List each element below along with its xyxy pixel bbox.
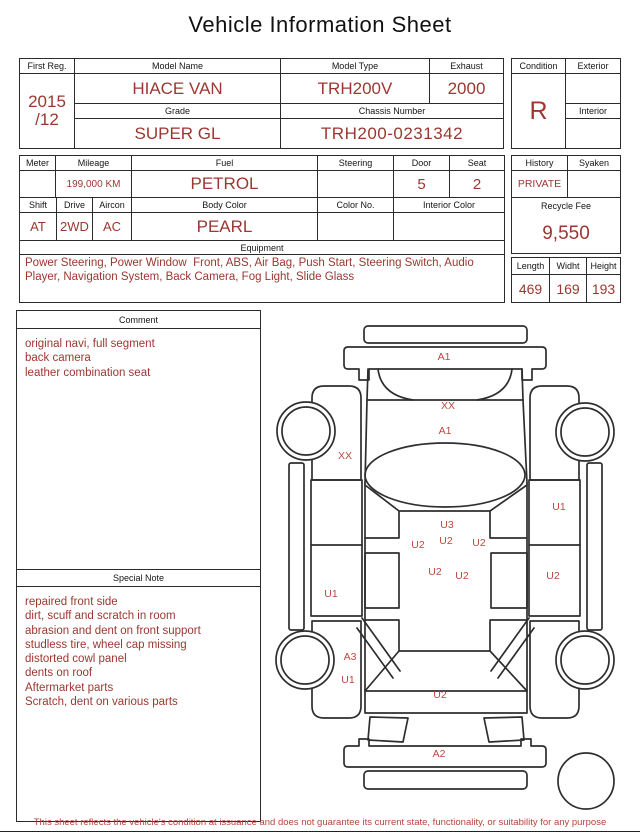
car-sill-right	[587, 463, 602, 630]
length-header: Length	[512, 258, 550, 275]
steering-value	[318, 171, 394, 198]
damage-label-u2: U2	[546, 570, 560, 582]
drive-header: Drive	[57, 198, 93, 213]
car-cowl-sides	[365, 400, 527, 483]
body-color-value: PEARL	[132, 213, 318, 241]
car-roof-side-panel-left	[365, 553, 399, 608]
aircon-value: AC	[93, 213, 132, 241]
syaken-header: Syaken	[568, 156, 620, 171]
model-name-header: Model Name	[75, 59, 281, 74]
recycle-fee-value: 9,550	[512, 214, 620, 253]
car-dpillar-left	[357, 618, 400, 678]
shift-value: AT	[20, 213, 57, 241]
dimensions-table: Length Widht Height 469 169 193	[511, 257, 621, 303]
width-header: Widht	[550, 258, 587, 275]
comment-text: original navi, full segment back camera …	[17, 331, 260, 401]
car-taillight-right	[484, 717, 524, 742]
condition-table: Condition R Exterior Interior	[511, 58, 621, 149]
page-title: Vehicle Information Sheet	[0, 12, 640, 38]
car-front-panel	[367, 369, 523, 400]
color-no-value	[318, 213, 394, 241]
first-reg-header: First Reg.	[20, 59, 75, 74]
damage-label-u1: U1	[341, 674, 355, 686]
height-header: Height	[587, 258, 620, 275]
damage-label-u2: U2	[455, 570, 469, 582]
aircon-header: Aircon	[93, 198, 132, 213]
color-no-header: Color No.	[318, 198, 394, 213]
damage-label-a2: A2	[433, 748, 446, 760]
damage-label-u2: U2	[439, 535, 453, 547]
equipment-header: Equipment	[20, 241, 504, 255]
car-windshield-arc-left	[378, 369, 413, 400]
length-value: 469	[512, 275, 550, 302]
chassis-number-value: TRH200-0231342	[281, 119, 503, 148]
drive-value: 2WD	[57, 213, 93, 241]
disclaimer-text: This sheet reflects the vehicle's condit…	[0, 817, 640, 828]
damage-label-a3: A3	[344, 651, 357, 663]
car-roof-rear-section	[365, 620, 527, 651]
damage-label-u3: U3	[440, 519, 454, 531]
special-note-text: repaired front side dirt, scuff and scra…	[17, 589, 260, 739]
wheel-rear-right	[556, 631, 614, 689]
damage-label-xx: XX	[441, 400, 455, 412]
model-type-value: TRH200V	[281, 74, 430, 104]
comment-header: Comment	[17, 311, 260, 329]
mileage-value: 199,000 KM	[56, 171, 132, 198]
exterior-header: Exterior	[566, 59, 620, 74]
car-taillight-left	[368, 717, 408, 742]
syaken-value	[568, 171, 620, 198]
exterior-value	[566, 74, 620, 104]
grade-header: Grade	[75, 104, 281, 119]
wheel-front-right	[556, 403, 614, 461]
interior-header: Interior	[566, 104, 620, 119]
car-roof-sides	[365, 483, 527, 691]
equipment-value: Power Steering, Power Window Front, ABS,…	[20, 255, 504, 302]
special-note-header: Special Note	[17, 569, 260, 587]
interior-color-value	[394, 213, 504, 241]
recycle-fee-header: Recycle Fee	[512, 198, 620, 214]
vehicle-information-sheet: Vehicle Information Sheet First Reg. 201…	[0, 0, 640, 835]
fuel-value: PETROL	[132, 171, 318, 198]
spare-tire	[558, 753, 614, 809]
history-table: History Syaken PRIVATE Recycle Fee 9,550	[511, 155, 621, 254]
bottom-rule	[0, 831, 640, 832]
wheel-front-left	[277, 402, 335, 460]
shift-header: Shift	[20, 198, 57, 213]
car-front-grille-strip	[364, 326, 527, 343]
spec-table: Meter Mileage Fuel Steering Door Seat 19…	[19, 155, 505, 303]
damage-label-xx: XX	[338, 450, 352, 462]
car-windshield	[365, 443, 525, 507]
steering-header: Steering	[318, 156, 394, 171]
damage-label-u1: U1	[324, 588, 338, 600]
exhaust-header: Exhaust	[430, 59, 503, 74]
exhaust-value: 2000	[430, 74, 503, 104]
first-reg-value: 2015 /12	[20, 74, 75, 148]
fuel-header: Fuel	[132, 156, 318, 171]
damage-label-u1: U1	[552, 501, 566, 513]
car-rear-lower-strip	[364, 771, 527, 789]
model-name-value: HIACE VAN	[75, 74, 281, 104]
damage-label-a1: A1	[438, 351, 451, 363]
meter-header: Meter	[20, 156, 56, 171]
damage-label-u2: U2	[411, 539, 425, 551]
seat-value: 2	[450, 171, 504, 198]
model-type-header: Model Type	[281, 59, 430, 74]
condition-header: Condition	[512, 59, 566, 74]
width-value: 169	[550, 275, 587, 302]
history-value: PRIVATE	[512, 171, 568, 198]
car-roof-side-panel-right	[491, 553, 527, 608]
damage-label-u2: U2	[433, 689, 447, 701]
meter-value	[20, 171, 56, 198]
car-sill-left	[289, 463, 304, 630]
chassis-number-header: Chassis Number	[281, 104, 503, 119]
damage-label-u2: U2	[472, 537, 486, 549]
door-header: Door	[394, 156, 450, 171]
height-value: 193	[587, 275, 620, 302]
vehicle-damage-diagram: A1XXA1XXU1U3U2U2U2U2U2U2U1A3U1U2A2	[265, 310, 640, 815]
seat-header: Seat	[450, 156, 504, 171]
comment-panel: Comment original navi, full segment back…	[16, 310, 261, 822]
car-windshield-arc-right	[477, 369, 512, 400]
door-value: 5	[394, 171, 450, 198]
history-header: History	[512, 156, 568, 171]
mileage-header: Mileage	[56, 156, 132, 171]
wheel-rear-left	[276, 631, 334, 689]
condition-value: R	[512, 74, 566, 148]
interior-color-header: Interior Color	[394, 198, 504, 213]
damage-label-u2: U2	[428, 566, 442, 578]
body-color-header: Body Color	[132, 198, 318, 213]
interior-value	[566, 119, 620, 148]
grade-value: SUPER GL	[75, 119, 281, 148]
damage-label-a1: A1	[439, 425, 452, 437]
identity-table: First Reg. 2015 /12 Model Name HIACE VAN…	[19, 58, 504, 149]
